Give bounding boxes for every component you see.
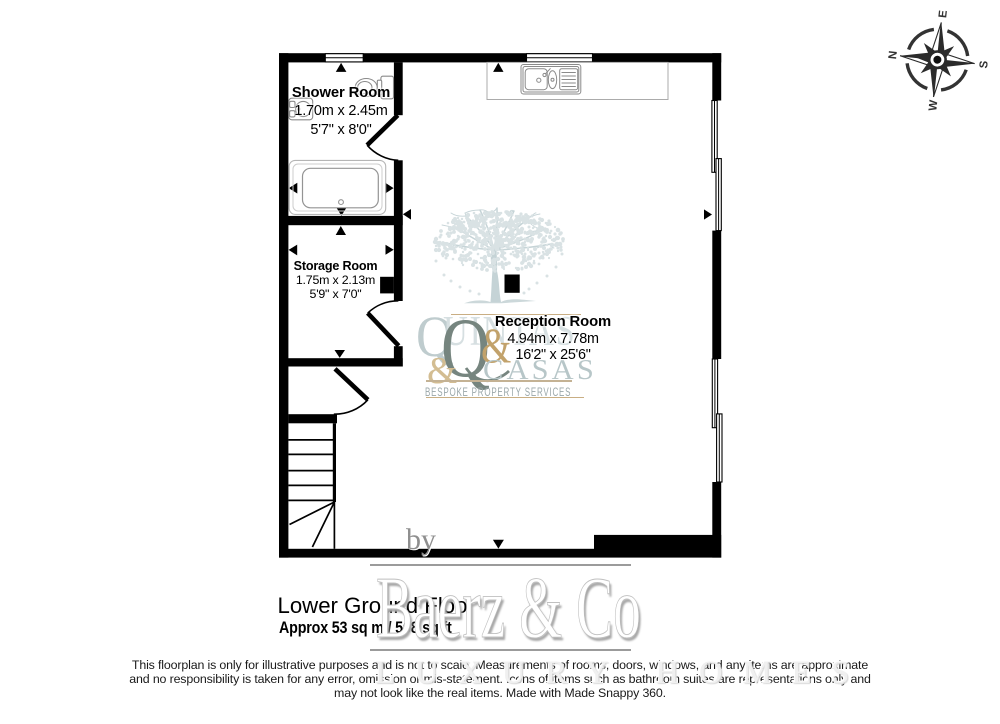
svg-text:S: S [978,60,991,69]
svg-text:N: N [887,50,900,60]
svg-text:E: E [937,9,950,18]
svg-text:W: W [927,99,940,111]
